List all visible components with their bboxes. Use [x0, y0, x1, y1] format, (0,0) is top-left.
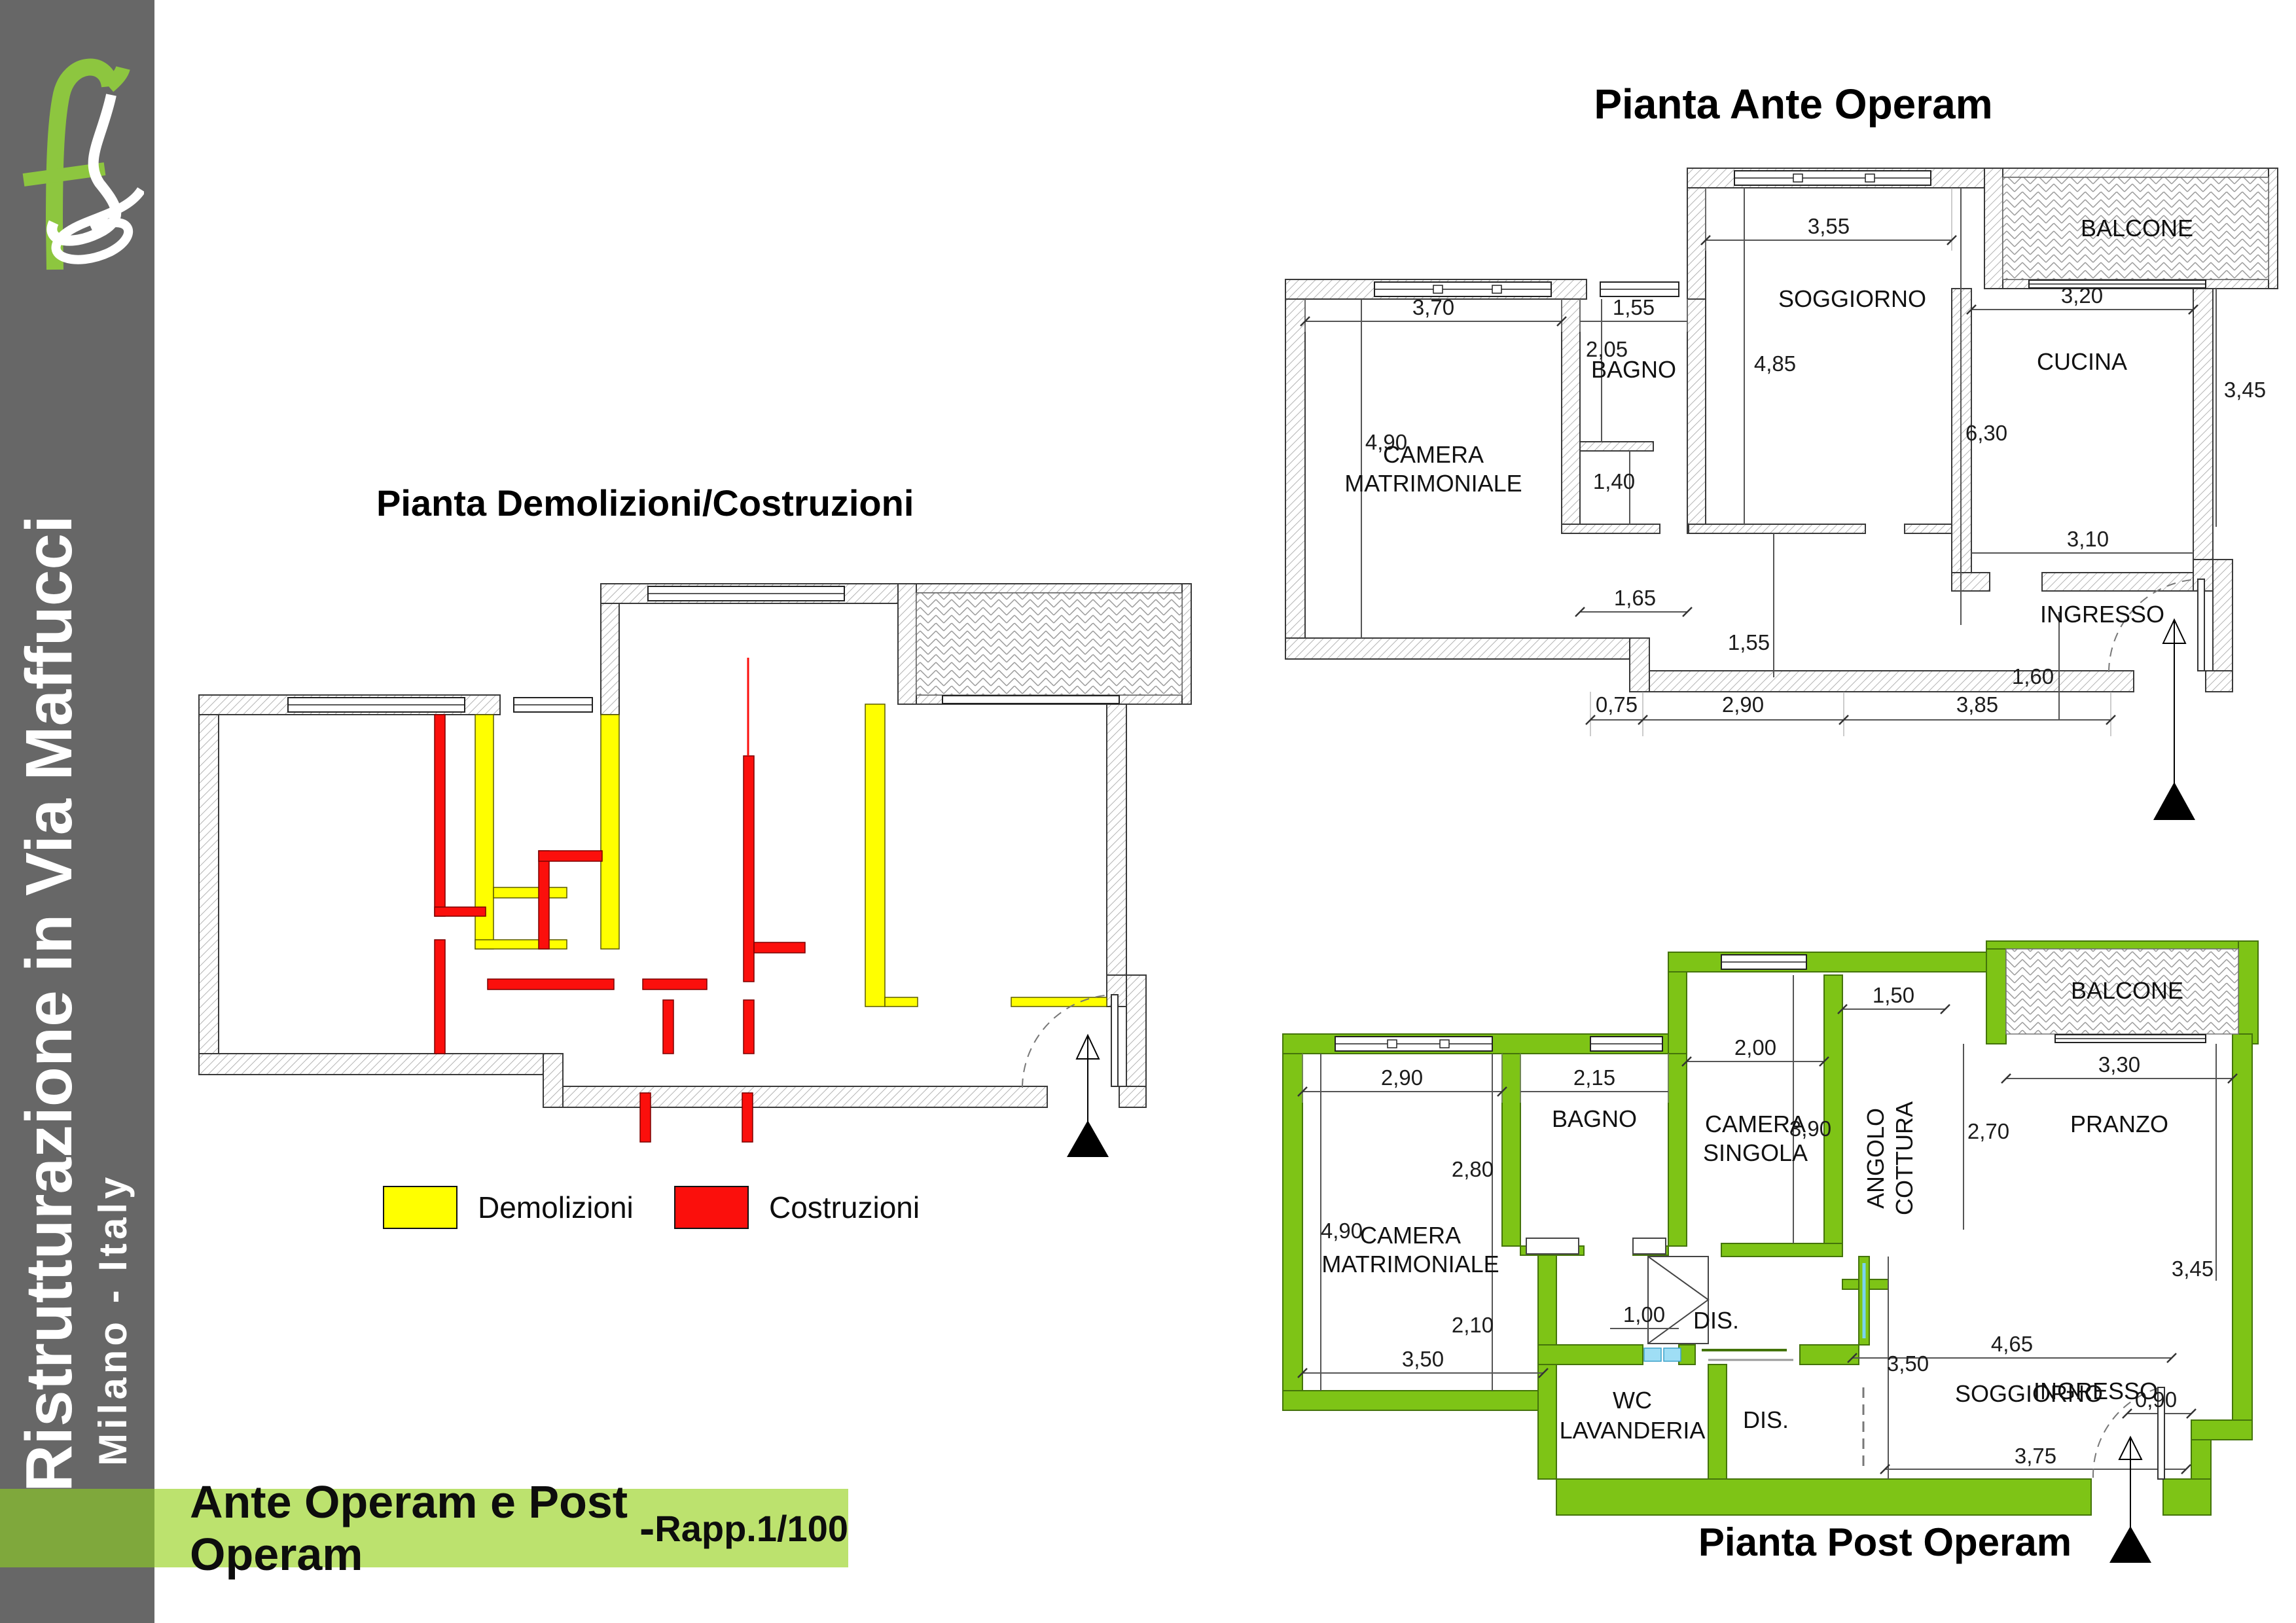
ante-dim-355: 3,55	[1808, 214, 1850, 238]
entry-arrow-icon	[2109, 1526, 2151, 1563]
banner-sidebar-block	[0, 1489, 154, 1567]
demo-balcone-floor	[916, 593, 1182, 695]
post-dim-465: 4,65	[1991, 1332, 2033, 1356]
ante-dim-290: 2,90	[1722, 692, 1764, 717]
post-room-dis-1: DIS.	[1693, 1307, 1739, 1334]
project-location-vertical: Milano - Italy	[90, 857, 136, 1466]
post-dim-345: 3,45	[2172, 1257, 2214, 1281]
post-room-wc-2: LAVANDERIA	[1560, 1417, 1706, 1444]
post-room-dis-2: DIS.	[1743, 1406, 1789, 1433]
ante-operam-plan: 3,70 1,55 3,55 2,05 4,85 3,20 3,45 6,30 …	[1276, 160, 2296, 854]
legend-demolizioni-swatch	[383, 1186, 457, 1229]
post-dim-270: 2,70	[1967, 1119, 2009, 1143]
post-dim-150: 1,50	[1873, 983, 1914, 1007]
ante-dim-140: 1,40	[1593, 469, 1635, 493]
ante-dim-165: 1,65	[1614, 586, 1656, 610]
post-operam-plan: 2,90 2,15 2,00 1,50 2,70 3,30 3,90 3,45 …	[1276, 936, 2296, 1590]
post-dim-280: 2,80	[1452, 1157, 1494, 1181]
post-dim-350b: 3,50	[1402, 1347, 1444, 1371]
ante-dim-370: 3,70	[1412, 295, 1454, 319]
ante-room-cucina: CUCINA	[2037, 348, 2127, 375]
post-dim-490: 4,90	[1321, 1219, 1363, 1243]
post-dim-100: 1,00	[1623, 1302, 1665, 1327]
studio-logo-icon	[13, 26, 144, 288]
demolizioni-plan	[190, 576, 1211, 1165]
demo-entry-door	[1022, 995, 1118, 1157]
post-room-singola-2: SINGOLA	[1703, 1139, 1808, 1166]
ante-room-camera-2: MATRIMONIALE	[1344, 470, 1522, 497]
ante-room-bagno: BAGNO	[1591, 356, 1676, 383]
legend-costruzioni-label: Costruzioni	[769, 1190, 920, 1225]
ante-dim-320: 3,20	[2061, 283, 2103, 308]
ante-room-balcone: BALCONE	[2081, 215, 2193, 241]
ante-dim-155b: 1,55	[1728, 630, 1770, 654]
ante-dim-160: 1,60	[2012, 664, 2054, 688]
ante-dim-155a: 1,55	[1613, 295, 1655, 319]
post-dim-210: 2,10	[1452, 1313, 1494, 1337]
post-room-pranzo: PRANZO	[2070, 1111, 2168, 1137]
post-room-camera-1: CAMERA	[1360, 1222, 1461, 1249]
entry-arrow-icon	[1067, 1120, 1109, 1157]
post-dim-375: 3,75	[2015, 1444, 2056, 1468]
banner-main-text: Ante Operam e Post Operam	[190, 1476, 639, 1580]
post-dim-330: 3,30	[2098, 1052, 2140, 1077]
ante-room-soggiorno: SOGGIORNO	[1778, 285, 1926, 312]
ante-dim-485: 4,85	[1754, 351, 1796, 376]
legend-costruzioni-swatch	[674, 1186, 749, 1229]
post-dim-350v: 3,50	[1887, 1351, 1929, 1376]
entry-arrow-icon	[2153, 782, 2195, 820]
post-room-angolo-2: COTTURA	[1891, 1101, 1918, 1215]
post-room-bagno: BAGNO	[1552, 1105, 1637, 1132]
post-room-ingresso: INGRESSO	[2034, 1378, 2158, 1404]
sheet-banner: Ante Operam e Post Operam - Rapp.1/100	[154, 1489, 848, 1567]
ante-dim-385: 3,85	[1956, 692, 1998, 717]
ante-dim-310: 3,10	[2067, 527, 2109, 551]
demolizioni-title: Pianta Demolizioni/Costruzioni	[376, 482, 900, 524]
ante-dim-075: 0,75	[1596, 692, 1638, 717]
banner-separator: -	[639, 1502, 655, 1554]
post-dim-290: 2,90	[1381, 1065, 1423, 1090]
banner-scale-text: Rapp.1/100	[655, 1507, 848, 1550]
ante-operam-title: Pianta Ante Operam	[1532, 80, 2055, 128]
post-room-wc-1: WC	[1613, 1387, 1652, 1414]
post-room-angolo-1: ANGOLO	[1862, 1108, 1889, 1209]
post-dim-200: 2,00	[1734, 1035, 1776, 1060]
ante-dim-630: 6,30	[1965, 421, 2007, 445]
post-room-camera-2: MATRIMONIALE	[1321, 1251, 1499, 1277]
ante-dim-345: 3,45	[2224, 378, 2266, 402]
ante-room-ingresso: INGRESSO	[2040, 601, 2164, 628]
post-room-singola-1: CAMERA	[1705, 1111, 1806, 1137]
ante-room-camera-1: CAMERA	[1383, 441, 1484, 468]
project-title-vertical: Ristrutturazione in Via Maffucci	[12, 386, 90, 1492]
legend-demolizioni-label: Demolizioni	[478, 1190, 634, 1225]
post-dim-215: 2,15	[1573, 1065, 1615, 1090]
post-room-balcone: BALCONE	[2071, 977, 2183, 1004]
